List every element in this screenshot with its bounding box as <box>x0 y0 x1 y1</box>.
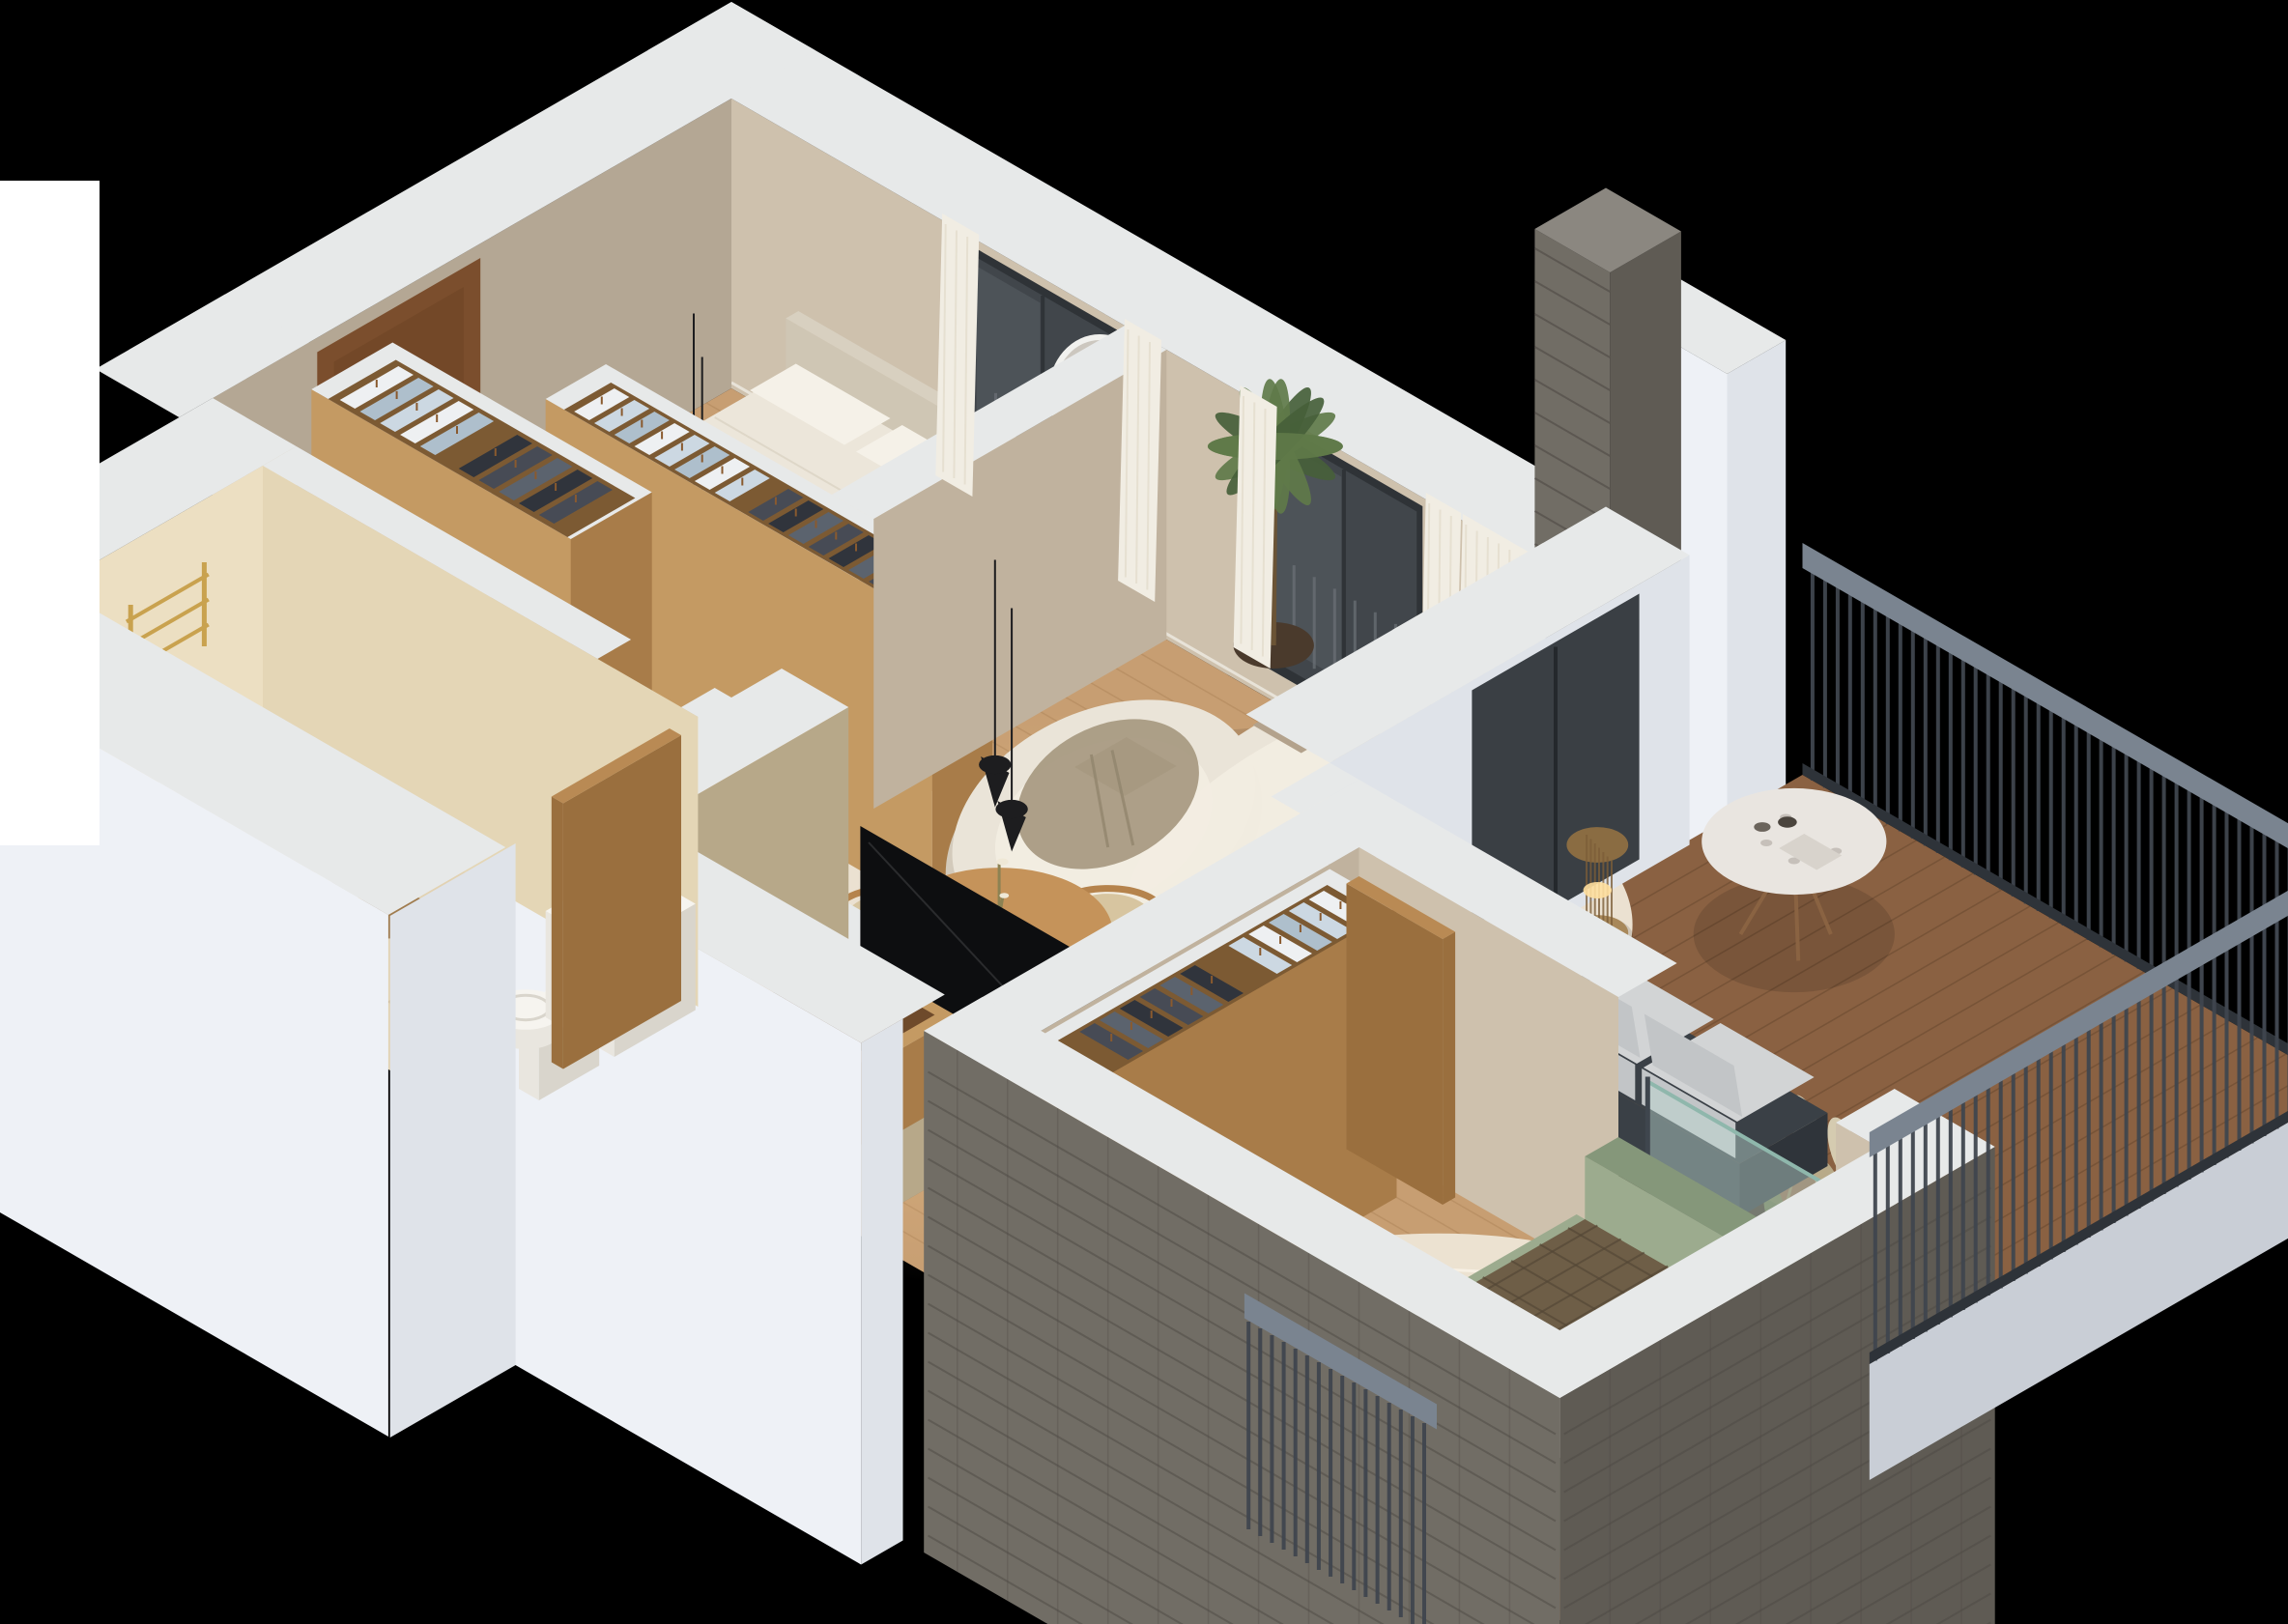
isometric-floorplan-scene <box>0 0 2288 1624</box>
render-canvas <box>0 0 2288 1624</box>
left-white-bar <box>0 181 100 845</box>
